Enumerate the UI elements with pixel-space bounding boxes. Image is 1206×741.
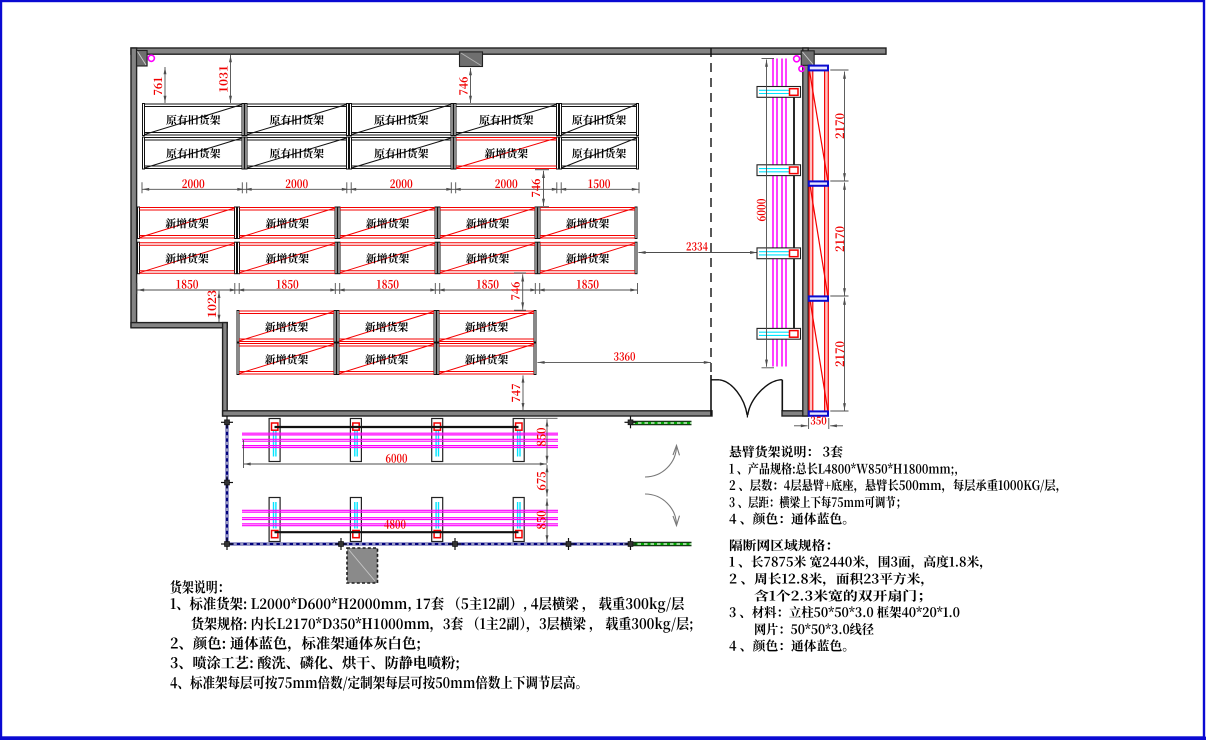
svg-text:850: 850 — [533, 428, 550, 447]
svg-text:747: 747 — [508, 383, 524, 402]
svg-text:1031: 1031 — [216, 65, 232, 93]
svg-text:原有旧货架: 原有旧货架 — [572, 146, 627, 162]
svg-text:原有旧货架: 原有旧货架 — [270, 146, 325, 162]
svg-text:1850: 1850 — [276, 276, 299, 293]
svg-text:1500: 1500 — [588, 175, 611, 192]
svg-text:350: 350 — [810, 412, 827, 428]
svg-text:1850: 1850 — [476, 276, 499, 293]
svg-text:新增货架: 新增货架 — [365, 351, 409, 367]
svg-text:新增货架: 新增货架 — [366, 251, 410, 267]
svg-text:4、标准架每层可按75mm倍数/定制架每层可按50mm倍数上: 4、标准架每层可按75mm倍数/定制架每层可按50mm倍数上下调节层高。 — [170, 672, 588, 693]
svg-text:2000: 2000 — [390, 175, 413, 192]
svg-text:1、标准货架: L2000*D600*H2000mm, 17: 1、标准货架: L2000*D600*H2000mm, 17套 （5主12副）,… — [170, 593, 685, 614]
svg-text:新增货架: 新增货架 — [365, 319, 409, 335]
svg-text:新增货架: 新增货架 — [466, 251, 510, 267]
svg-text:原有旧货架: 原有旧货架 — [166, 112, 221, 128]
svg-text:4 、颜色：通体蓝色。: 4 、颜色：通体蓝色。 — [729, 636, 855, 655]
svg-text:原有旧货架: 原有旧货架 — [166, 146, 221, 162]
svg-text:4 、颜色：通体蓝色。: 4 、颜色：通体蓝色。 — [729, 509, 855, 528]
svg-text:新增货架: 新增货架 — [466, 215, 510, 231]
svg-text:原有旧货架: 原有旧货架 — [374, 112, 429, 128]
svg-text:675: 675 — [533, 472, 550, 491]
svg-text:新增货架: 新增货架 — [265, 319, 309, 335]
svg-text:2170: 2170 — [831, 341, 848, 367]
svg-text:1850: 1850 — [376, 276, 399, 293]
svg-text:1023: 1023 — [204, 290, 220, 318]
svg-text:新增货架: 新增货架 — [265, 251, 309, 267]
svg-text:2334: 2334 — [686, 238, 708, 254]
svg-text:2170: 2170 — [831, 226, 848, 252]
svg-text:1850: 1850 — [576, 276, 599, 293]
svg-text:新增货架: 新增货架 — [165, 215, 209, 231]
svg-text:新增货架: 新增货架 — [465, 351, 509, 367]
svg-text:原有旧货架: 原有旧货架 — [374, 146, 429, 162]
svg-text:3360: 3360 — [614, 348, 636, 364]
svg-text:2170: 2170 — [831, 113, 848, 139]
svg-text:新增货架: 新增货架 — [265, 351, 309, 367]
svg-text:货架规格: 内长L2170*D350*H1000mm，3套: 货架规格: 内长L2170*D350*H1000mm，3套 （1主2副），3层横… — [191, 613, 694, 634]
svg-text:原有旧货架: 原有旧货架 — [479, 112, 534, 128]
svg-text:原有旧货架: 原有旧货架 — [270, 112, 325, 128]
svg-text:2000: 2000 — [182, 175, 205, 192]
svg-text:2000: 2000 — [495, 175, 518, 192]
svg-text:6000: 6000 — [386, 449, 408, 466]
svg-text:新增货架: 新增货架 — [265, 215, 309, 231]
svg-text:新增货架: 新增货架 — [566, 251, 610, 267]
svg-text:6000: 6000 — [753, 199, 770, 222]
svg-text:新增货架: 新增货架 — [484, 146, 528, 162]
svg-text:850: 850 — [533, 511, 550, 530]
svg-text:3、喷涂工艺: 酸洗、磷化、烘干、防静电喷粉;: 3、喷涂工艺: 酸洗、磷化、烘干、防静电喷粉; — [170, 652, 460, 673]
svg-text:2000: 2000 — [285, 175, 308, 192]
svg-text:原有旧货架: 原有旧货架 — [572, 112, 627, 128]
svg-text:新增货架: 新增货架 — [366, 215, 410, 231]
svg-text:746: 746 — [456, 76, 472, 95]
svg-text:746: 746 — [508, 281, 524, 300]
svg-text:1850: 1850 — [176, 276, 199, 293]
svg-text:2、颜色: 通体蓝色，标准架通体灰白色;: 2、颜色: 通体蓝色，标准架通体灰白色; — [170, 633, 421, 654]
svg-text:746: 746 — [528, 178, 544, 197]
svg-text:新增货架: 新增货架 — [465, 319, 509, 335]
svg-text:761: 761 — [150, 77, 166, 96]
svg-text:新增货架: 新增货架 — [566, 215, 610, 231]
svg-text:4800: 4800 — [384, 516, 406, 533]
svg-text:新增货架: 新增货架 — [165, 251, 209, 267]
